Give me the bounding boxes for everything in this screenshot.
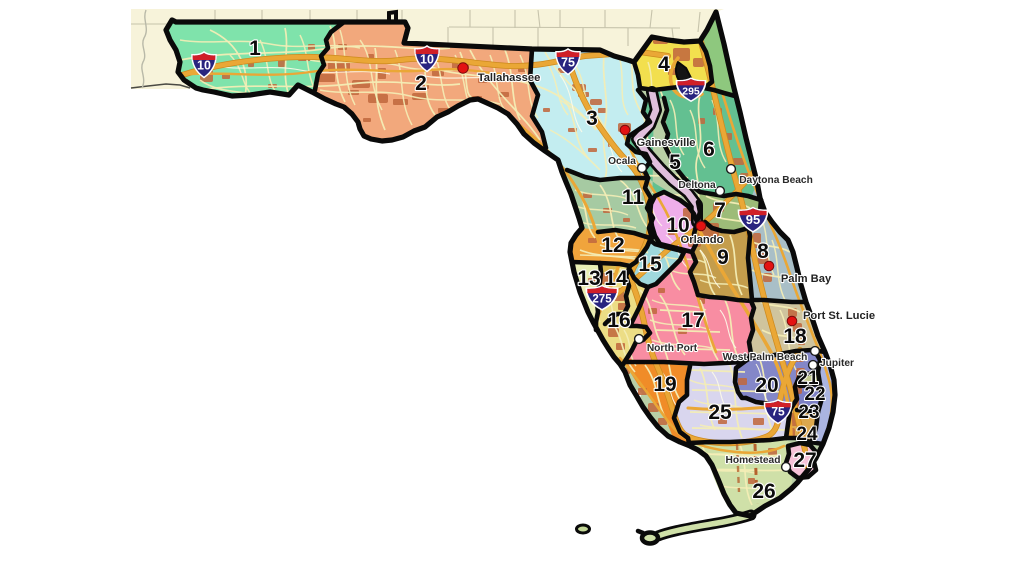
svg-text:Palm Bay: Palm Bay <box>781 273 832 285</box>
svg-text:1: 1 <box>249 37 261 60</box>
svg-text:15: 15 <box>638 253 662 276</box>
svg-text:27: 27 <box>793 449 816 472</box>
svg-text:26: 26 <box>752 480 775 503</box>
svg-text:12: 12 <box>601 234 624 257</box>
svg-text:Homestead: Homestead <box>726 455 781 466</box>
svg-text:20: 20 <box>755 374 778 397</box>
svg-text:6: 6 <box>703 138 715 161</box>
svg-text:275: 275 <box>592 294 612 306</box>
svg-text:8: 8 <box>757 240 769 263</box>
svg-text:4: 4 <box>658 53 670 76</box>
svg-text:Ocala: Ocala <box>608 156 636 167</box>
svg-text:3: 3 <box>586 107 598 130</box>
svg-text:14: 14 <box>604 267 628 290</box>
svg-text:2: 2 <box>415 72 427 95</box>
svg-text:7: 7 <box>714 199 726 222</box>
svg-text:13: 13 <box>577 267 600 290</box>
svg-text:Port St. Lucie: Port St. Lucie <box>803 310 875 322</box>
svg-text:19: 19 <box>653 373 676 396</box>
svg-text:9: 9 <box>717 246 729 269</box>
svg-text:17: 17 <box>681 309 704 332</box>
svg-text:Daytona Beach: Daytona Beach <box>739 175 813 186</box>
svg-text:16: 16 <box>607 309 630 332</box>
svg-text:11: 11 <box>622 186 645 209</box>
svg-text:24: 24 <box>796 424 818 445</box>
svg-text:75: 75 <box>771 405 785 419</box>
svg-text:18: 18 <box>783 325 807 348</box>
svg-text:5: 5 <box>669 151 681 174</box>
svg-text:10: 10 <box>420 53 434 67</box>
svg-text:295: 295 <box>682 86 700 98</box>
svg-text:West Palm Beach: West Palm Beach <box>723 352 808 363</box>
svg-text:95: 95 <box>746 212 760 227</box>
svg-text:North Port: North Port <box>647 343 698 354</box>
svg-text:Tallahassee: Tallahassee <box>478 72 541 84</box>
svg-text:10: 10 <box>197 59 211 73</box>
svg-text:Jupiter: Jupiter <box>820 358 854 369</box>
svg-text:25: 25 <box>708 401 732 424</box>
svg-text:23: 23 <box>798 402 819 423</box>
svg-text:75: 75 <box>561 56 575 70</box>
svg-text:Gainesville: Gainesville <box>636 137 695 149</box>
svg-text:Deltona: Deltona <box>678 180 716 191</box>
svg-text:10: 10 <box>666 214 689 237</box>
